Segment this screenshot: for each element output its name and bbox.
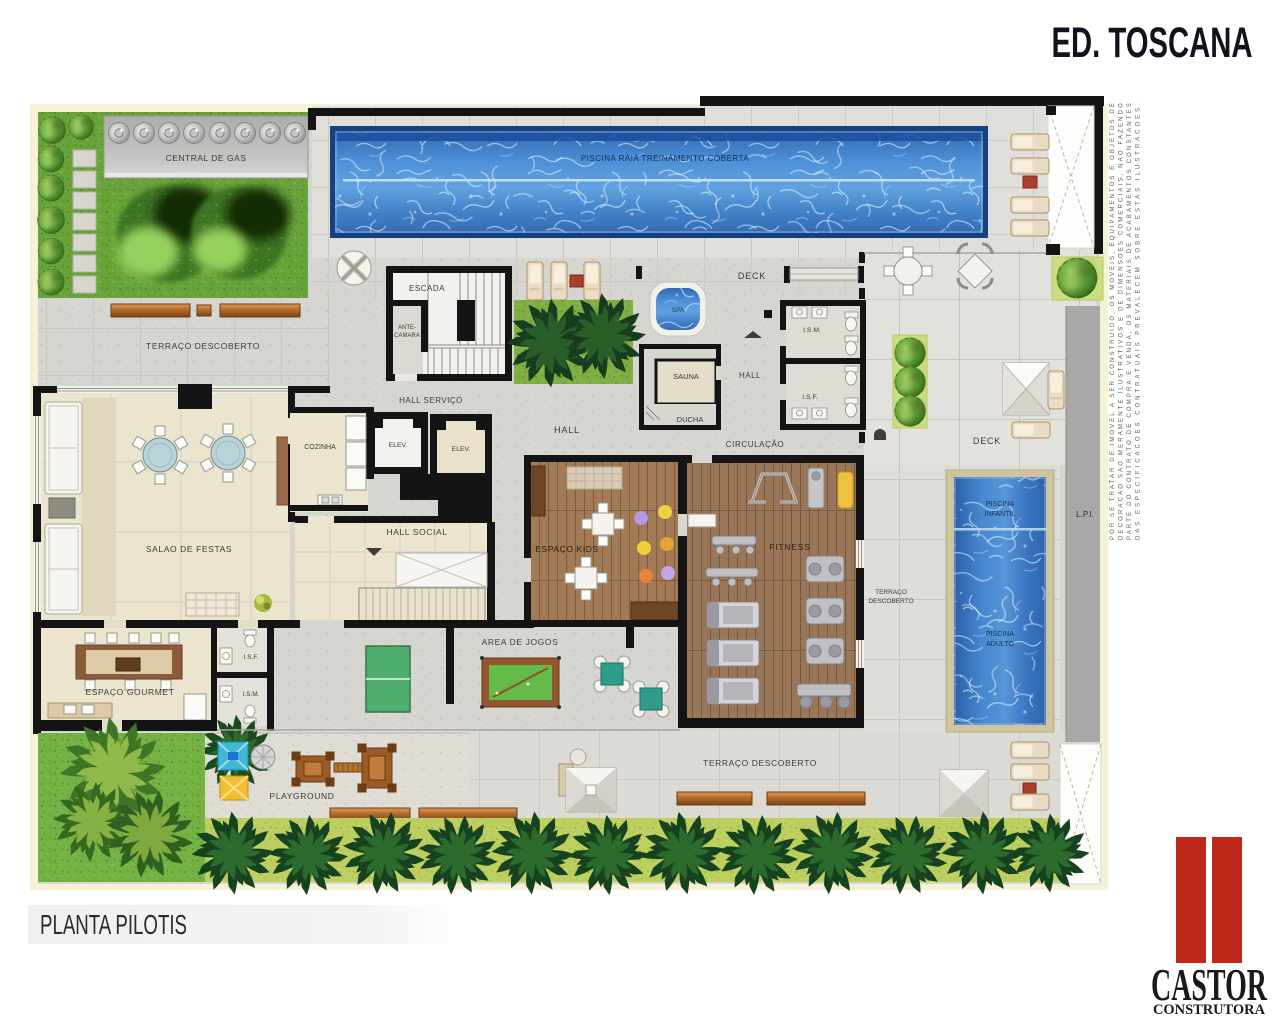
svg-text:DUCHA: DUCHA bbox=[677, 415, 704, 424]
svg-text:ESPAÇO KIDS: ESPAÇO KIDS bbox=[535, 544, 599, 554]
svg-text:CENTRAL DE GAS: CENTRAL DE GAS bbox=[166, 153, 247, 163]
svg-text:SALAO DE FESTAS: SALAO DE FESTAS bbox=[146, 544, 232, 554]
svg-text:CAMARA: CAMARA bbox=[394, 333, 420, 339]
svg-text:ED. TOSCANA: ED. TOSCANA bbox=[1052, 19, 1253, 67]
svg-text:DAS ESPECIFICACOES CONTRATUAIS: DAS ESPECIFICACOES CONTRATUAIS PREVALECE… bbox=[1136, 103, 1142, 540]
svg-text:ELEV.: ELEV. bbox=[452, 446, 471, 453]
svg-text:PARTE DO CONTRATO DE COMPRA E: PARTE DO CONTRATO DE COMPRA E VENDA, OS … bbox=[1127, 103, 1133, 540]
svg-text:COZINHA: COZINHA bbox=[304, 444, 336, 451]
svg-text:PISCINA: PISCINA bbox=[986, 631, 1014, 638]
svg-text:CONSTRUTORA: CONSTRUTORA bbox=[1153, 1002, 1265, 1018]
svg-text:ESCADA: ESCADA bbox=[409, 284, 445, 293]
svg-text:PLANTA PILOTIS: PLANTA PILOTIS bbox=[40, 909, 187, 940]
svg-text:ESPAÇO GOURMET: ESPAÇO GOURMET bbox=[85, 687, 174, 697]
svg-text:POR SE TRATAR DE IMOVEL A SER: POR SE TRATAR DE IMOVEL A SER CONSTRUIDO… bbox=[1110, 103, 1116, 540]
svg-text:I.S.F.: I.S.F. bbox=[244, 654, 259, 661]
svg-text:AREA DE JOGOS: AREA DE JOGOS bbox=[482, 637, 559, 647]
svg-text:TERRAÇO: TERRAÇO bbox=[875, 589, 907, 596]
svg-text:L.P.I.: L.P.I. bbox=[1076, 510, 1094, 519]
svg-text:SPA: SPA bbox=[672, 307, 685, 314]
svg-text:ELEV.: ELEV. bbox=[389, 442, 408, 449]
svg-text:I.S.F.: I.S.F. bbox=[802, 394, 818, 401]
svg-text:PISCINA: PISCINA bbox=[986, 501, 1014, 508]
svg-text:SAUNA: SAUNA bbox=[673, 372, 699, 381]
svg-text:INFANTIL: INFANTIL bbox=[985, 511, 1016, 518]
svg-text:I.S.M.: I.S.M. bbox=[803, 327, 821, 334]
svg-text:DESCOBERTO: DESCOBERTO bbox=[868, 598, 913, 605]
svg-text:CIRCULAÇÃO: CIRCULAÇÃO bbox=[726, 440, 784, 449]
svg-text:DECORACAO SAO MERAMENTE ILUSTR: DECORACAO SAO MERAMENTE ILUSTRATIVOS E D… bbox=[1119, 103, 1125, 540]
svg-text:HALL: HALL bbox=[554, 425, 580, 435]
svg-text:HALL: HALL bbox=[739, 371, 761, 380]
svg-text:FITNESS: FITNESS bbox=[769, 542, 811, 552]
svg-text:ANTE-: ANTE- bbox=[398, 325, 416, 331]
svg-text:HALL SOCIAL: HALL SOCIAL bbox=[386, 527, 447, 537]
svg-text:PISCINA RAIA TREINAMENTO COBER: PISCINA RAIA TREINAMENTO COBERTA bbox=[581, 154, 749, 163]
svg-text:PLAYGROUND: PLAYGROUND bbox=[270, 791, 335, 801]
svg-text:TERRAÇO DESCOBERTO: TERRAÇO DESCOBERTO bbox=[703, 758, 817, 768]
svg-text:DECK: DECK bbox=[738, 271, 766, 281]
svg-text:DECK: DECK bbox=[973, 436, 1001, 446]
svg-text:I.S.M.: I.S.M. bbox=[243, 691, 260, 698]
svg-text:HALL SERVIÇO: HALL SERVIÇO bbox=[399, 396, 463, 405]
svg-text:ADULTO: ADULTO bbox=[986, 641, 1014, 648]
svg-text:TERRAÇO DESCOBERTO: TERRAÇO DESCOBERTO bbox=[146, 341, 260, 351]
